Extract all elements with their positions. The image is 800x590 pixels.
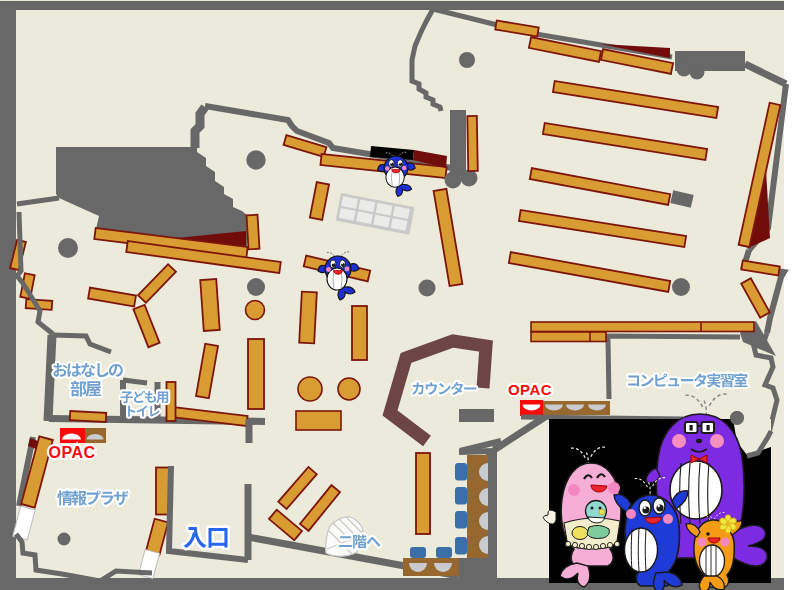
svg-text:OPAC: OPAC xyxy=(508,381,552,398)
svg-text:OPAC: OPAC xyxy=(48,444,95,461)
